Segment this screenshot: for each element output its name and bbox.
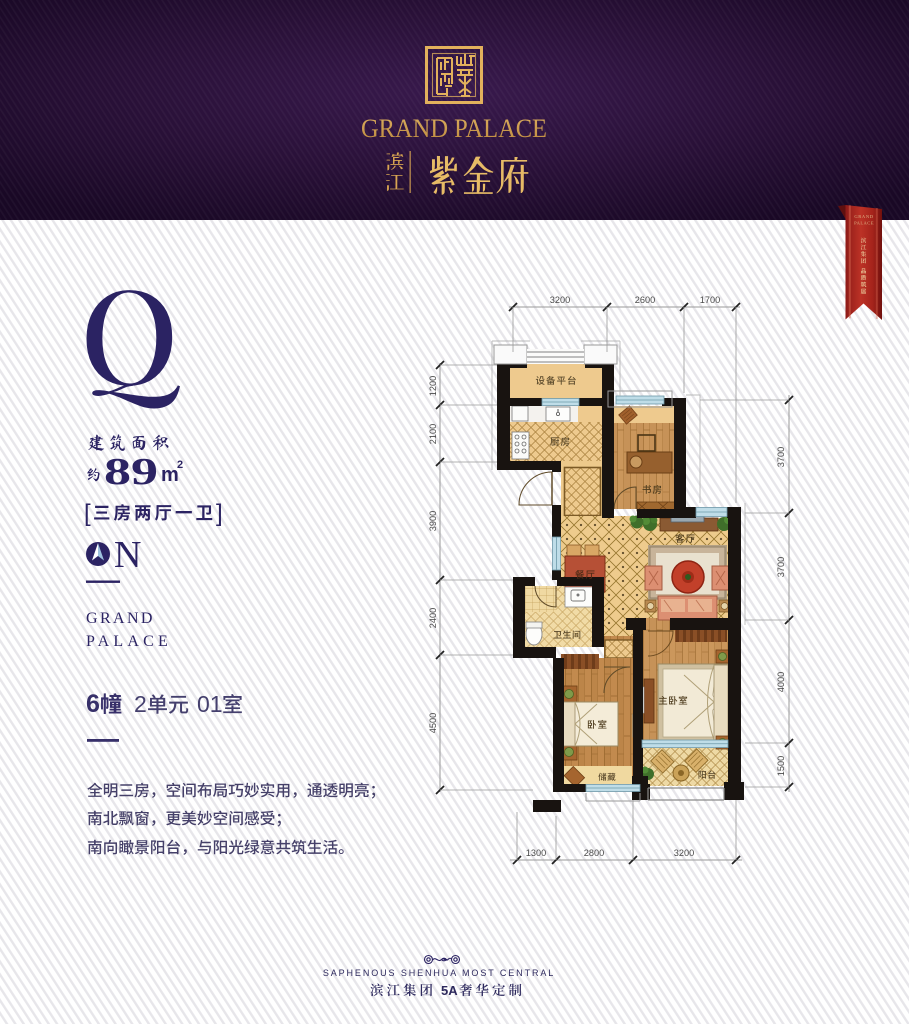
svg-text:3200: 3200 — [550, 295, 570, 305]
svg-text:2800: 2800 — [584, 848, 604, 858]
svg-text:1700: 1700 — [700, 295, 720, 305]
svg-text:6: 6 — [86, 690, 100, 718]
svg-text:01: 01 — [197, 691, 223, 717]
svg-text:3700: 3700 — [776, 557, 786, 577]
svg-text:GRAND PALACE: GRAND PALACE — [361, 114, 547, 143]
svg-text:3700: 3700 — [776, 447, 786, 467]
svg-text:3200: 3200 — [674, 848, 694, 858]
svg-text:4500: 4500 — [428, 713, 438, 733]
svg-text:GRAND: GRAND — [854, 214, 873, 219]
svg-text:2: 2 — [134, 691, 147, 717]
svg-text:SAPHENOUS SHENHUA MOST CENTRAL: SAPHENOUS SHENHUA MOST CENTRAL — [323, 968, 555, 978]
svg-text:89: 89 — [104, 451, 158, 493]
svg-text:1300: 1300 — [526, 848, 546, 858]
svg-text:[: [ — [84, 500, 91, 527]
svg-text:]: ] — [216, 500, 223, 527]
svg-text:2400: 2400 — [428, 608, 438, 628]
svg-text:GRAND: GRAND — [86, 610, 155, 627]
svg-text:5A: 5A — [441, 983, 458, 998]
svg-text:1200: 1200 — [428, 376, 438, 396]
svg-text:2: 2 — [177, 459, 183, 471]
svg-text:4000: 4000 — [776, 672, 786, 692]
svg-text:PALACE: PALACE — [854, 221, 874, 226]
svg-text:N: N — [114, 534, 141, 576]
svg-text:2600: 2600 — [635, 295, 655, 305]
svg-text:3900: 3900 — [428, 511, 438, 531]
svg-text:PALACE: PALACE — [86, 633, 172, 650]
svg-text:2100: 2100 — [428, 424, 438, 444]
svg-text:1500: 1500 — [776, 756, 786, 776]
